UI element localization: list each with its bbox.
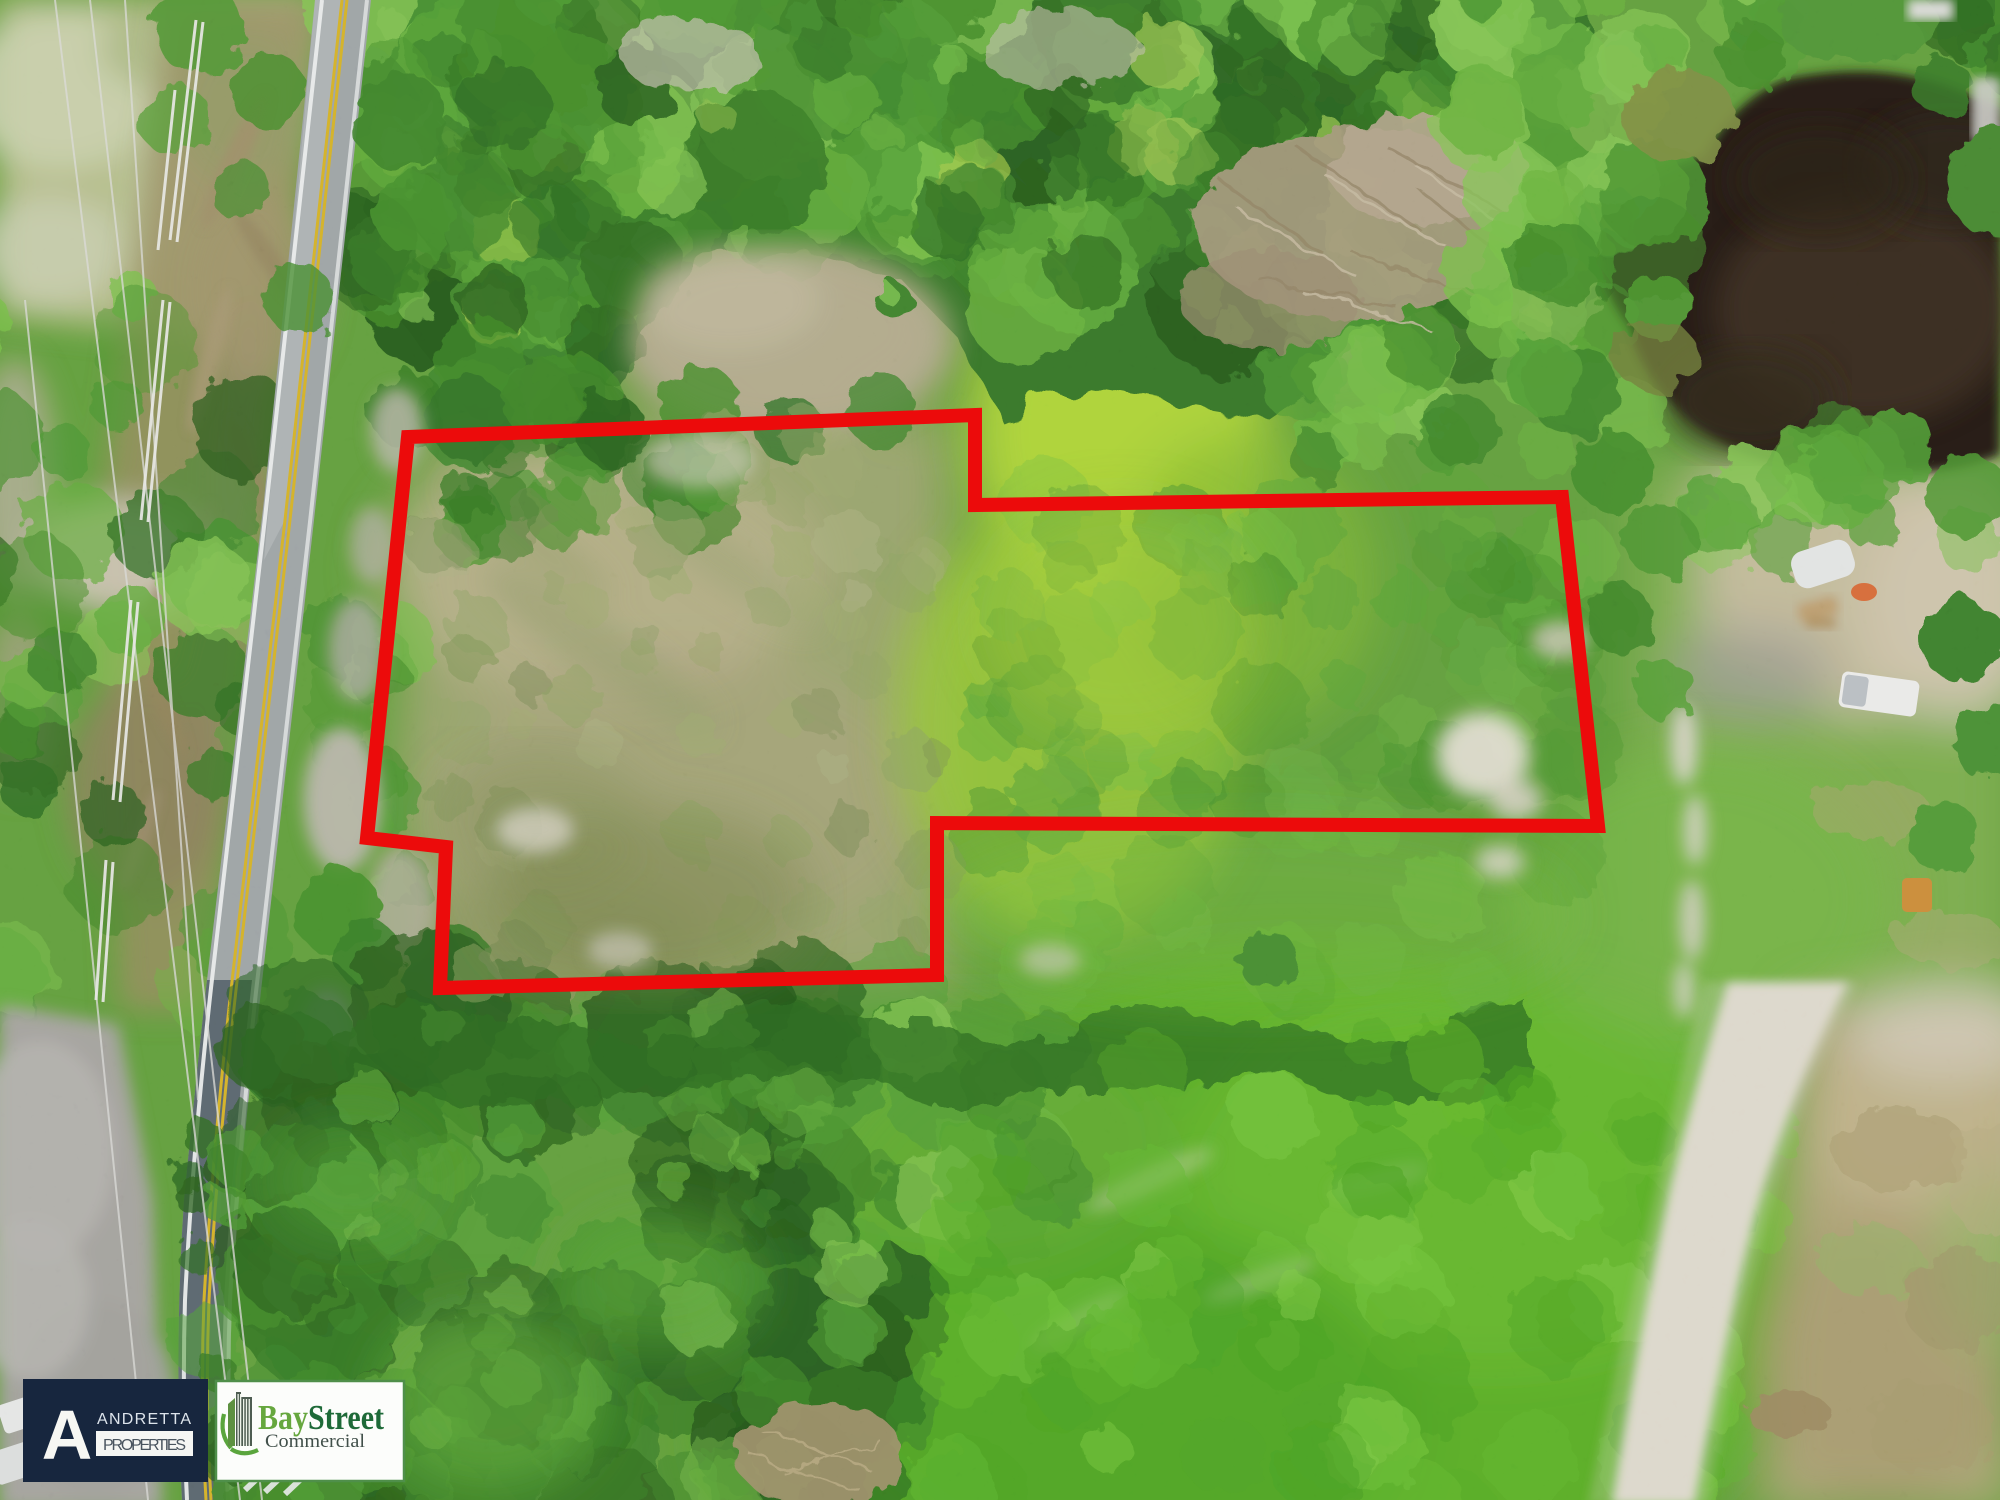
svg-text:A: A — [42, 1396, 93, 1474]
svg-text:Commercial: Commercial — [265, 1431, 365, 1452]
svg-text:ANDRETTA: ANDRETTA — [97, 1411, 191, 1428]
svg-text:PROPERTIES: PROPERTIES — [103, 1437, 186, 1454]
